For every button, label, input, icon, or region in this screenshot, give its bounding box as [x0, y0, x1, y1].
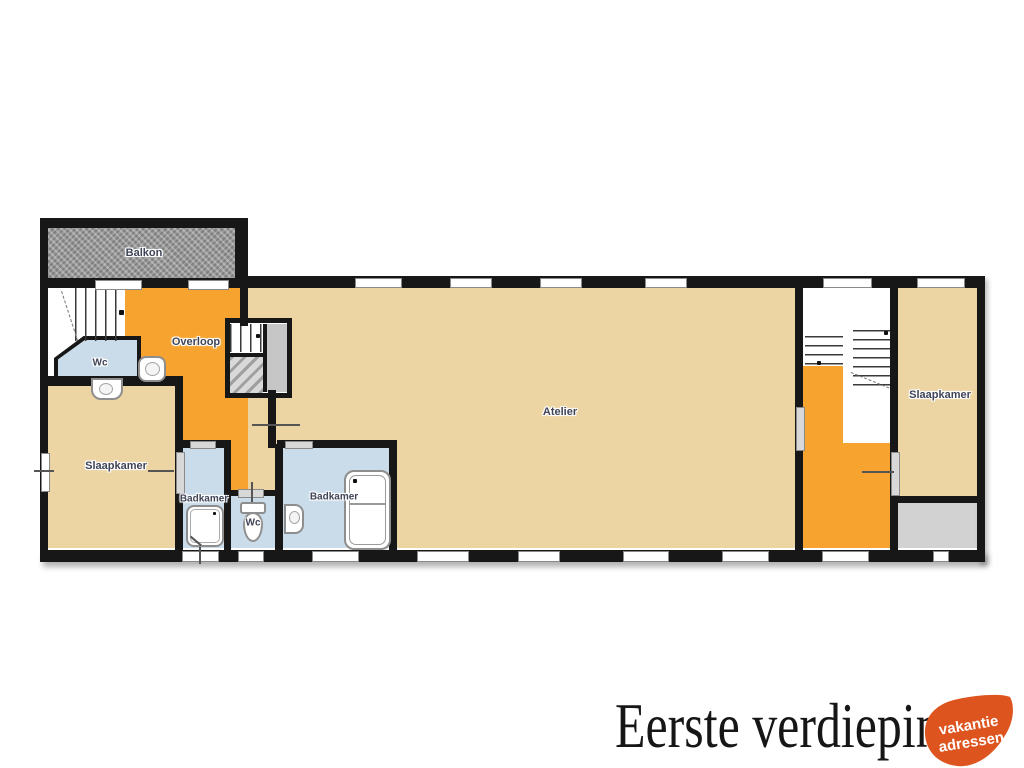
stair-dot — [884, 331, 888, 335]
window — [722, 551, 769, 562]
stair-treads-landing-a — [805, 336, 843, 368]
stair-treads-topleft — [75, 287, 125, 341]
door-tick — [862, 471, 894, 473]
wall-landing-slaapkamer2 — [890, 284, 898, 550]
room-fill-landing-bottom — [803, 443, 890, 548]
wall-balkon-top — [40, 218, 248, 228]
window — [417, 551, 469, 562]
window — [822, 551, 869, 562]
room-label-wc2: Wc — [246, 518, 261, 529]
door-tick — [252, 424, 300, 426]
stair-dot — [119, 310, 124, 315]
wall-wc2-right — [275, 444, 283, 550]
window — [540, 278, 582, 288]
window — [238, 551, 264, 562]
wall-outer-right — [977, 276, 985, 562]
room-label-slaapkamer1: Slaapkamer — [85, 460, 147, 472]
wall-outer-left — [40, 276, 48, 562]
door — [891, 452, 900, 496]
floor-title: Eerste verdieping — [615, 694, 966, 758]
window — [41, 453, 50, 492]
window — [355, 278, 402, 288]
toilet-bowl-icon — [145, 362, 160, 376]
window — [933, 551, 949, 562]
vakantieadressen-logo: vakantie adressen — [922, 692, 1018, 768]
door — [176, 452, 185, 494]
bathtub-divider — [349, 503, 386, 505]
window — [917, 278, 965, 288]
window — [312, 551, 359, 562]
door-tick — [251, 482, 253, 502]
door-tick — [199, 546, 201, 564]
room-label-balkon: Balkon — [126, 247, 163, 259]
sink-basin-icon — [289, 511, 300, 524]
window — [450, 278, 492, 288]
stair-dot — [817, 361, 821, 365]
wall-outer-top — [235, 276, 985, 288]
window — [645, 278, 687, 288]
wall-overloop-atelier — [240, 284, 248, 326]
window — [623, 551, 669, 562]
bathtub-inner-icon — [349, 475, 386, 545]
stair-treads-middle — [230, 324, 263, 352]
window — [95, 280, 142, 290]
stair-treads-landing-b — [853, 330, 893, 386]
room-label-badkamer2: Badkamer — [310, 492, 358, 503]
window — [518, 551, 560, 562]
shower-drain-icon — [213, 512, 216, 515]
room-fill-flat-roof — [898, 503, 977, 548]
door — [285, 441, 313, 449]
room-label-slaapkamer2: Slaapkamer — [909, 389, 971, 401]
door-tick — [148, 470, 174, 472]
sink-basin-icon — [99, 383, 113, 395]
door — [796, 407, 805, 451]
room-label-atelier: Atelier — [543, 406, 577, 418]
door — [190, 441, 216, 449]
window — [188, 280, 229, 290]
bathtub-faucet-icon — [353, 479, 357, 483]
room-label-overloop: Overloop — [172, 336, 220, 348]
room-label-badkamer1: Badkamer — [180, 494, 228, 505]
stair-structure-gray-panel — [263, 324, 287, 392]
door-tick — [34, 470, 54, 472]
window — [182, 551, 219, 562]
stair-structure-hatched-void — [230, 353, 263, 393]
room-label-wc1: Wc — [93, 358, 108, 369]
window — [823, 278, 872, 288]
floorplan-page: Balkon Overloop Wc Slaapkamer Badkamer W… — [0, 0, 1024, 768]
stair-dot — [256, 334, 260, 338]
wall-overloop-atelier-lower — [268, 390, 276, 448]
wall-slaapkamer2-roof — [898, 496, 977, 503]
